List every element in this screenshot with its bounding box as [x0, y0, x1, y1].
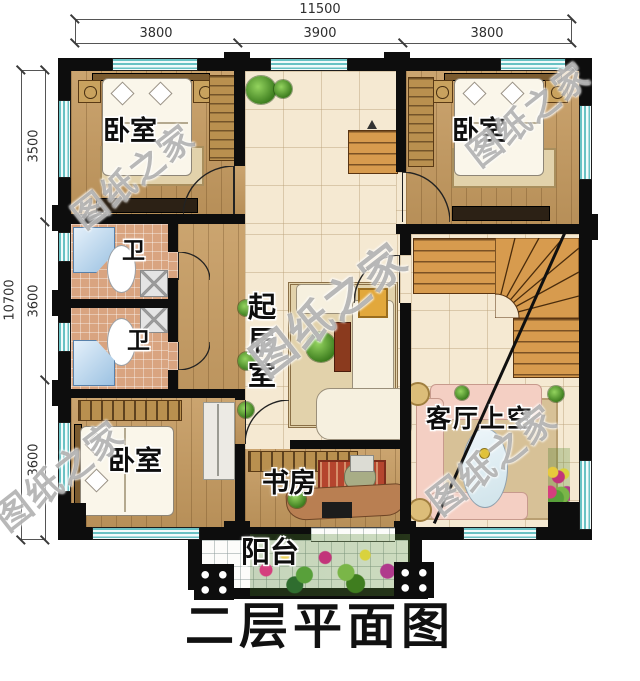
window	[58, 100, 71, 178]
dim-top-seg-line	[75, 43, 572, 44]
window	[579, 460, 592, 530]
floor-plan-page: 11500 3800 3900 3800 10700 3500 3600 360…	[0, 0, 640, 681]
door-arc	[402, 172, 450, 222]
wall-segment	[168, 278, 178, 342]
wall-segment	[396, 71, 406, 172]
room-label-bath-bottom: 卫	[127, 330, 150, 353]
chaise-sofa	[316, 388, 412, 440]
door-arc	[183, 166, 235, 216]
potted-plant	[548, 386, 564, 402]
dim-left-total: 10700	[3, 279, 18, 320]
dim-extension	[75, 19, 76, 44]
dim-left-seg-2: 3600	[27, 284, 42, 317]
dim-extension	[21, 70, 46, 71]
wardrobe	[209, 75, 235, 161]
monitor	[322, 502, 352, 518]
room-label-balcony: 阳台	[241, 538, 299, 567]
dim-top-seg-3: 3800	[470, 26, 503, 41]
dim-left-seg-1: 3500	[27, 129, 42, 162]
stair-winder	[495, 238, 579, 318]
door-threshold	[168, 252, 178, 278]
wardrobe-divider	[217, 404, 219, 476]
window	[463, 527, 537, 540]
dim-top-seg-2: 3900	[303, 26, 336, 41]
wall-segment	[396, 224, 592, 234]
wall-segment	[58, 299, 168, 308]
door-arc	[178, 252, 210, 280]
wall-pier	[52, 380, 71, 406]
window	[92, 527, 200, 540]
potted-plant	[274, 80, 292, 98]
wall-segment	[168, 224, 178, 252]
wall-segment	[400, 234, 411, 255]
wall-pier	[224, 52, 250, 71]
wall-pier	[58, 503, 86, 540]
stair-run-upper	[413, 238, 497, 294]
toilet	[140, 270, 168, 297]
wall-pier	[52, 290, 71, 316]
stair-direction-arrow	[367, 120, 377, 129]
window	[579, 105, 592, 180]
dim-top-total: 11500	[299, 2, 340, 17]
window	[112, 58, 198, 71]
wall-pier	[579, 214, 598, 240]
wall-segment	[58, 389, 245, 398]
door-threshold	[168, 342, 178, 370]
wardrobe	[203, 402, 235, 480]
potted-plant	[455, 386, 469, 400]
dim-top-seg-1: 3800	[139, 26, 172, 41]
room-label-bath-top: 卫	[122, 240, 145, 263]
dim-extension	[21, 539, 46, 540]
nightstand	[78, 80, 101, 103]
door-threshold	[234, 166, 245, 214]
laptop	[350, 455, 374, 472]
dim-top-total-line	[75, 19, 572, 20]
wall-segment	[400, 303, 411, 540]
potted-plant	[246, 76, 276, 104]
window	[58, 322, 71, 352]
wardrobe	[408, 77, 434, 167]
plan-title: 二层平面图	[0, 598, 640, 657]
door-arc	[178, 342, 210, 370]
window	[270, 58, 348, 71]
railing-post	[394, 562, 434, 598]
wall-pier	[384, 52, 410, 71]
stair-steps	[348, 130, 398, 174]
room-label-study: 书房	[262, 470, 316, 497]
dresser	[452, 206, 550, 221]
wall-segment	[290, 440, 411, 449]
railing-post	[194, 564, 234, 600]
wall-segment	[234, 71, 245, 166]
window	[58, 232, 71, 262]
